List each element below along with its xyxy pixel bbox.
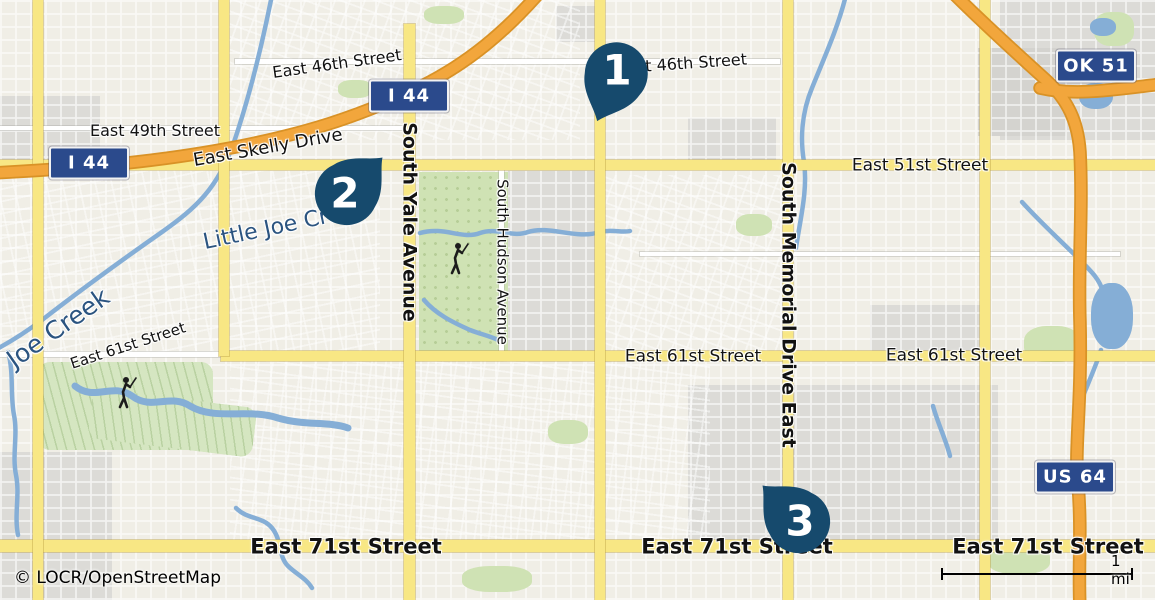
map-canvas[interactable]: East 46th StreetEast 46th StreetEast 49t… (0, 0, 1155, 600)
street-label: East 61st Street (625, 349, 761, 366)
map-attribution: © LOCR/OpenStreetMap (14, 568, 221, 588)
street-label: East 49th Street (90, 123, 220, 139)
route-shield: US 64 (1035, 461, 1115, 494)
map-marker-2[interactable]: 2 (285, 135, 405, 255)
route-shield: I 44 (49, 147, 129, 180)
route-shield: OK 51 (1056, 50, 1136, 83)
scale-bar-label: 1 mi (1111, 552, 1133, 588)
golfer-icon (444, 242, 470, 276)
marker-number: 1 (602, 49, 631, 91)
scale-bar (941, 573, 1133, 575)
scale-bar-tick (941, 568, 943, 580)
golfer-icon (112, 376, 138, 410)
street-label: East 71st Street (250, 537, 441, 558)
marker-number: 3 (785, 500, 814, 542)
street-label: East 51st Street (852, 158, 988, 175)
map-marker-3[interactable]: 3 (740, 463, 860, 583)
marker-number: 2 (330, 172, 359, 214)
map-marker-1[interactable]: 1 (557, 12, 677, 132)
route-shield: I 44 (369, 80, 449, 113)
street-label: East 61st Street (886, 348, 1022, 365)
street-label: South Hudson Avenue (495, 179, 510, 345)
street-label: South Memorial Drive East (779, 162, 798, 448)
